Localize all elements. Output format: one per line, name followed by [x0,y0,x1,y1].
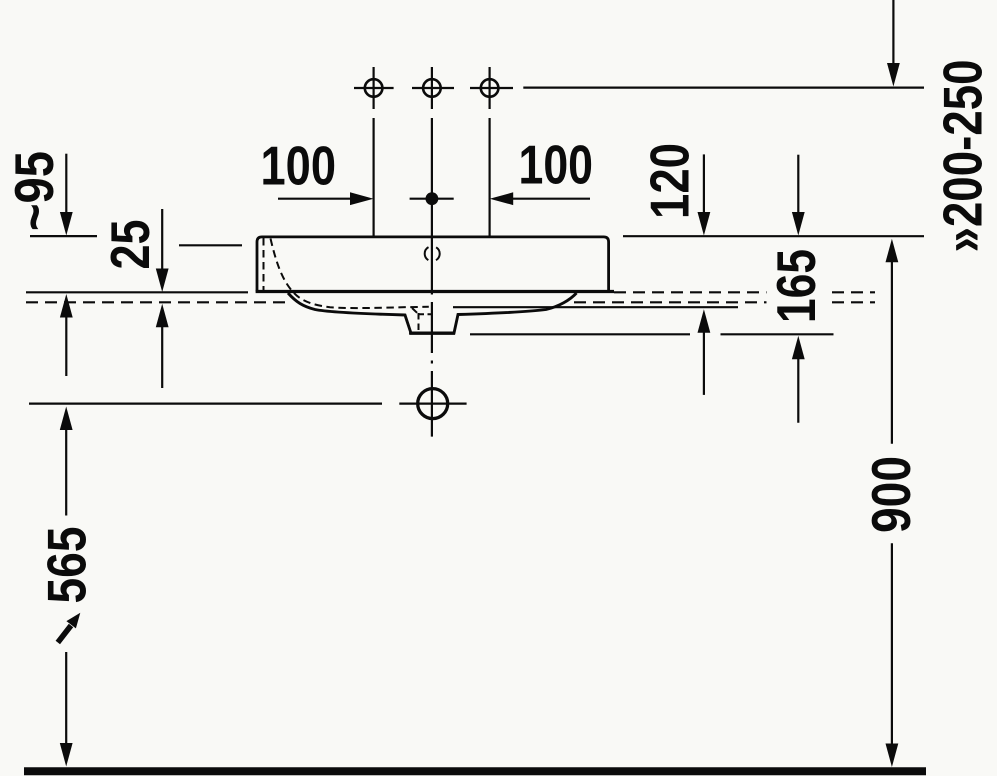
svg-text:»200-250: »200-250 [931,60,993,253]
svg-text:120: 120 [639,143,701,219]
svg-text:~95: ~95 [3,151,65,231]
svg-text:165: 165 [765,249,827,323]
svg-text:100: 100 [261,135,337,197]
svg-text:900: 900 [860,456,922,533]
svg-text:100: 100 [519,134,594,196]
svg-text:25: 25 [99,220,161,270]
svg-text:565: 565 [36,527,98,604]
